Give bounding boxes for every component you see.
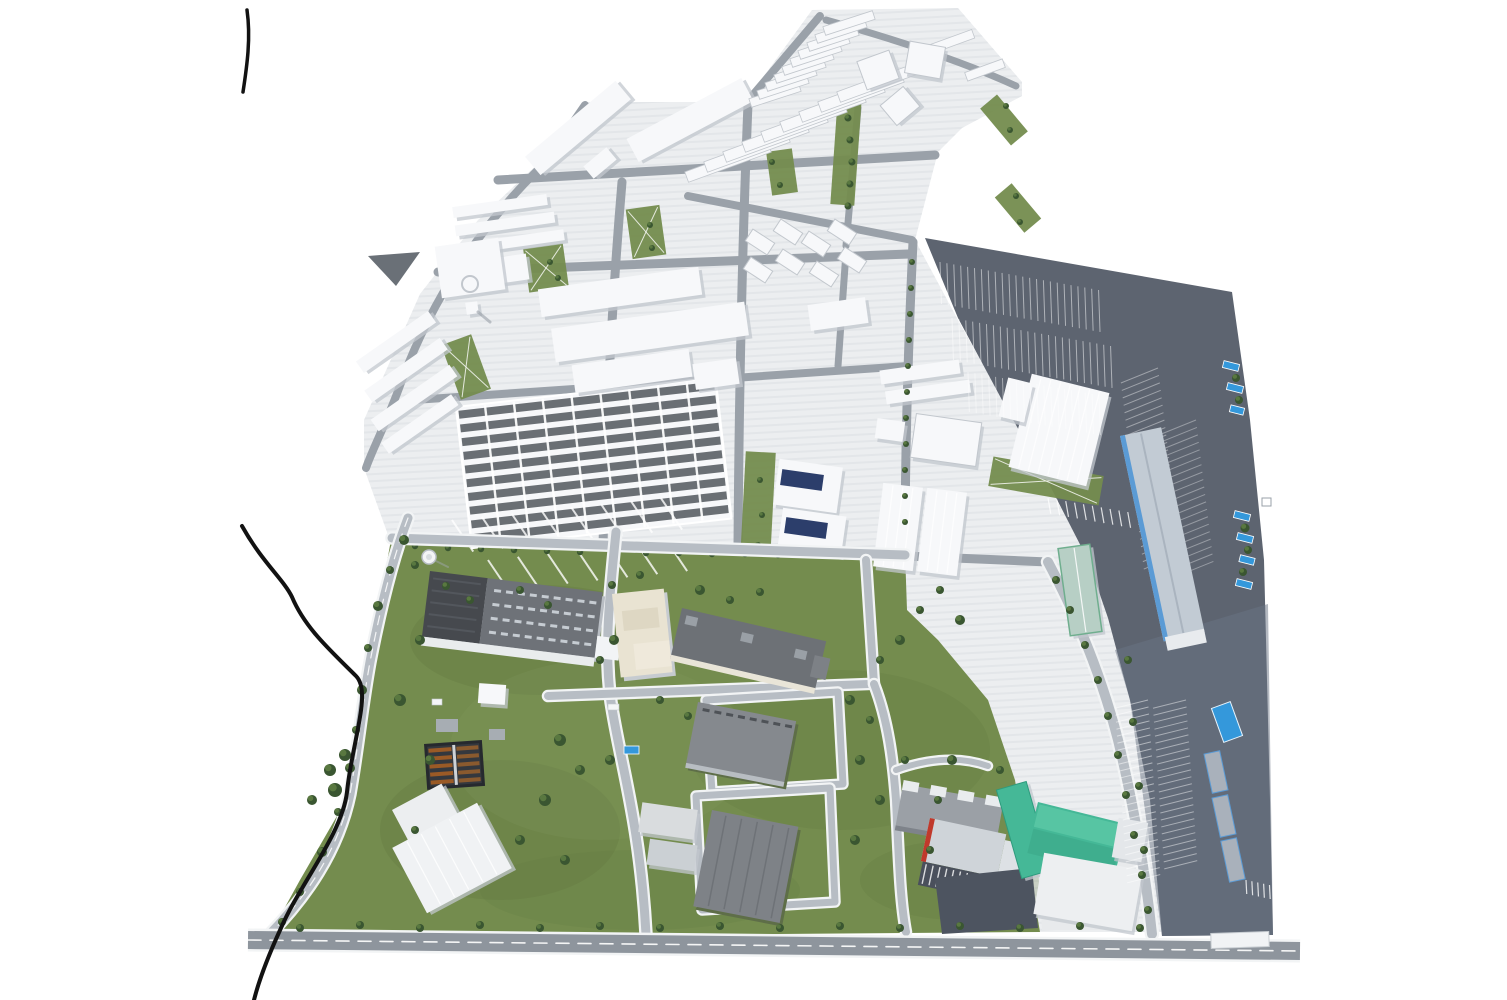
tree-highlight: [335, 808, 339, 812]
tree-highlight: [847, 181, 851, 185]
tree-highlight: [957, 922, 961, 926]
tree-highlight: [849, 159, 853, 163]
tower-building: [904, 41, 945, 79]
tree-highlight: [917, 606, 921, 610]
tree-highlight: [1236, 396, 1240, 400]
utility-pad: [489, 729, 505, 740]
tree-highlight: [1082, 641, 1086, 645]
tree-highlight: [935, 796, 939, 800]
tree-highlight: [537, 924, 541, 928]
tree-highlight: [555, 735, 562, 742]
tree-highlight: [927, 846, 931, 850]
tree-highlight: [657, 924, 661, 928]
tree-highlight: [1017, 924, 1021, 928]
tree-highlight: [777, 182, 780, 185]
tree-highlight: [576, 766, 582, 772]
tree-highlight: [727, 596, 731, 600]
shed: [478, 683, 506, 705]
tree-highlight: [851, 836, 857, 842]
tree-highlight: [908, 285, 911, 288]
tree-highlight: [412, 826, 416, 830]
tan-wing: [622, 607, 660, 631]
tan-wing: [633, 640, 672, 670]
tree-highlight: [1130, 718, 1134, 722]
tree-highlight: [937, 586, 941, 590]
tree-highlight: [1233, 374, 1237, 378]
tree-highlight: [325, 765, 332, 772]
tree-highlight: [906, 337, 909, 340]
tree-highlight: [685, 712, 689, 716]
gray-hall-building: [693, 810, 802, 927]
water-tower-top: [426, 554, 432, 560]
tree-highlight: [387, 566, 391, 570]
tree-highlight: [517, 586, 521, 590]
tree-highlight: [847, 137, 851, 141]
tree-highlight: [1141, 846, 1145, 850]
tree-highlight: [903, 441, 906, 444]
tree-highlight: [905, 363, 908, 366]
tree-highlight: [997, 766, 1001, 770]
tree-highlight: [1053, 576, 1057, 580]
tree-highlight: [443, 582, 447, 586]
tree-highlight: [837, 922, 841, 926]
tree-highlight: [547, 259, 550, 262]
tree-highlight: [647, 222, 650, 225]
tree-highlight: [467, 596, 471, 600]
tree-highlight: [1123, 791, 1127, 795]
tree-highlight: [1139, 871, 1143, 875]
tree-highlight: [477, 921, 481, 925]
tree-highlight: [637, 571, 641, 575]
tree-highlight: [902, 519, 905, 522]
tree-highlight: [1245, 546, 1249, 550]
white-van: [608, 704, 619, 710]
tree-highlight: [902, 467, 905, 470]
tree-highlight: [412, 561, 416, 565]
sawtooth-factory: [455, 377, 733, 548]
tree-highlight: [540, 795, 547, 802]
tree-highlight: [757, 588, 761, 592]
blue-dumpster-truck: [624, 746, 639, 754]
tree-highlight: [597, 922, 601, 926]
tree-highlight: [845, 115, 849, 119]
tree-highlight: [845, 203, 849, 207]
tree-highlight: [417, 924, 421, 928]
tree-highlight: [545, 601, 549, 605]
tree-highlight: [516, 836, 522, 842]
tree-highlight: [876, 796, 882, 802]
tree-highlight: [1125, 656, 1129, 660]
tree-highlight: [956, 616, 962, 622]
tree-highlight: [400, 536, 406, 542]
tree-highlight: [1131, 831, 1135, 835]
tree-highlight: [1003, 103, 1006, 106]
tree-highlight: [416, 636, 422, 642]
masterplan-render: [0, 0, 1507, 1000]
tree-highlight: [597, 656, 601, 660]
tree-highlight: [297, 924, 301, 928]
tree-highlight: [759, 512, 762, 515]
arc-roof-building: [435, 238, 506, 298]
tree-highlight: [308, 796, 314, 802]
tree-highlight: [374, 602, 380, 608]
tree-highlight: [909, 259, 912, 262]
tree-highlight: [948, 756, 954, 762]
tree-highlight: [1017, 219, 1020, 222]
tree-highlight: [717, 922, 721, 926]
tree-highlight: [1145, 906, 1149, 910]
tree-highlight: [769, 159, 772, 162]
tree-highlight: [856, 756, 862, 762]
tree-highlight: [1115, 751, 1119, 755]
office-building: [910, 414, 981, 467]
tree-highlight: [649, 245, 652, 248]
tree-highlight: [903, 415, 906, 418]
small-structure: [1262, 498, 1271, 506]
tree-highlight: [561, 856, 567, 862]
tree-highlight: [777, 924, 781, 928]
tree-highlight: [426, 756, 432, 762]
tree-highlight: [1013, 193, 1016, 196]
tree-highlight: [877, 656, 881, 660]
tree-highlight: [1077, 922, 1081, 926]
tree-highlight: [609, 581, 613, 585]
white-bus: [1211, 931, 1269, 948]
tree-highlight: [340, 750, 347, 757]
white-van: [432, 699, 442, 705]
tree-highlight: [357, 921, 361, 925]
tree-highlight: [902, 756, 906, 760]
tree-highlight: [904, 389, 907, 392]
tree-highlight: [1241, 524, 1246, 529]
small-building: [875, 418, 906, 442]
tree-highlight: [1095, 676, 1099, 680]
tree-highlight: [395, 695, 402, 702]
tree-highlight: [907, 311, 910, 314]
tree-highlight: [1240, 568, 1244, 572]
tree-highlight: [896, 636, 902, 642]
tree-highlight: [1137, 924, 1141, 928]
tree-highlight: [1007, 127, 1010, 130]
tree-highlight: [867, 716, 871, 720]
tree-highlight: [897, 924, 901, 928]
tree-highlight: [606, 756, 612, 762]
tan-building: [612, 588, 676, 681]
water-treatment-plant: [424, 740, 485, 790]
tree-highlight: [657, 696, 661, 700]
tree-highlight: [696, 586, 702, 592]
tree-highlight: [610, 636, 616, 642]
tree-highlight: [329, 784, 337, 792]
tree-highlight: [1067, 606, 1071, 610]
tree-highlight: [757, 477, 760, 480]
utility-pad: [436, 719, 458, 732]
tree-highlight: [1105, 712, 1109, 716]
tree-highlight: [555, 275, 558, 278]
tree-highlight: [846, 696, 852, 702]
tree-highlight: [1136, 782, 1140, 786]
masterplan-screenshot: [0, 0, 1507, 1000]
tree-highlight: [902, 493, 905, 496]
tree-highlight: [365, 644, 369, 648]
